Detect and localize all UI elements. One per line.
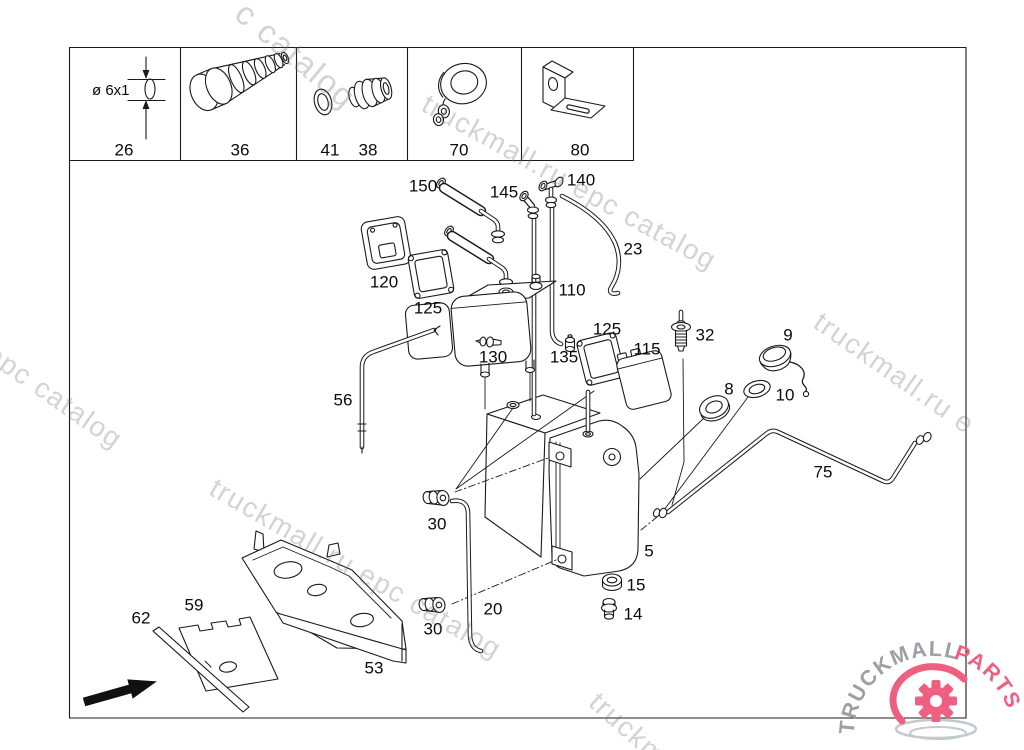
rubber-boot-icon <box>185 39 296 115</box>
part-number-label-150: 150 <box>409 178 437 195</box>
epc-diagram-page: ø 6x1 <box>0 0 1024 750</box>
truckmall-parts-logo: TRUCKMALL PARTS <box>835 637 1024 739</box>
direction-arrow-icon <box>83 679 157 706</box>
part-number-label-38: 38 <box>359 142 378 159</box>
part-number-label-20: 20 <box>484 601 503 618</box>
part-number-label-8: 8 <box>724 381 733 398</box>
gasket-125-upper <box>407 249 454 299</box>
part-number-label-145: 145 <box>490 184 518 201</box>
part-number-label-26: 26 <box>115 142 134 159</box>
outer-border <box>70 48 967 719</box>
part-number-label-23: 23 <box>624 241 643 258</box>
part-number-label-56: 56 <box>334 392 353 409</box>
hose-23 <box>562 196 619 294</box>
part-number-label-32: 32 <box>696 327 715 344</box>
plate-59 <box>179 617 278 691</box>
part-number-label-10: 10 <box>776 387 795 404</box>
part-number-label-30: 30 <box>428 516 447 533</box>
part-number-label-36: 36 <box>231 142 250 159</box>
mounting-bracket-53 <box>242 531 406 663</box>
fitting-30-lower <box>418 595 446 616</box>
part-number-label-70: 70 <box>450 142 469 159</box>
part-number-label-115: 115 <box>633 341 660 358</box>
elbow-fitting-145 <box>518 190 538 219</box>
part-number-label-120: 120 <box>370 274 398 291</box>
seal-ring-10 <box>742 378 772 401</box>
cover-120 <box>360 216 412 271</box>
washer-icon <box>311 87 334 117</box>
part-number-label-125: 125 <box>414 300 442 317</box>
valve-32 <box>672 312 691 351</box>
part-number-label-53: 53 <box>365 660 384 677</box>
part-number-label-110: 110 <box>558 282 585 299</box>
part-number-label-62: 62 <box>132 610 151 627</box>
pipe-75 <box>652 429 932 520</box>
bolt-dimension-icon: ø 6x1 <box>92 57 165 139</box>
part-number-label-135: 135 <box>550 349 578 366</box>
hose-clamp-icon <box>423 59 493 126</box>
grommet-15 <box>603 574 622 590</box>
part-number-label-30: 30 <box>424 621 443 638</box>
dimension-text: ø 6x1 <box>92 82 130 99</box>
fitting-30-upper <box>422 488 450 509</box>
reservoir-tank <box>485 395 639 576</box>
angle-bracket-icon <box>543 61 605 118</box>
grommet-icon <box>346 74 395 112</box>
part-number-label-59: 59 <box>185 597 204 614</box>
part-number-label-75: 75 <box>814 464 833 481</box>
part-number-label-15: 15 <box>627 577 646 594</box>
part-number-label-130: 130 <box>479 349 507 366</box>
diagram-line-art: ø 6x1 <box>0 0 1024 750</box>
part-number-label-9: 9 <box>783 327 792 344</box>
logo-gear-icon <box>893 667 976 739</box>
plug-14 <box>602 599 617 620</box>
part-number-label-125: 125 <box>593 321 621 338</box>
part-number-label-41: 41 <box>321 142 340 159</box>
part-number-label-80: 80 <box>571 142 590 159</box>
part-number-label-140: 140 <box>567 172 595 189</box>
tee-fitting-140 <box>537 176 564 208</box>
tube-20 <box>452 501 481 651</box>
part-number-label-5: 5 <box>644 543 653 560</box>
part-number-label-14: 14 <box>624 606 643 623</box>
